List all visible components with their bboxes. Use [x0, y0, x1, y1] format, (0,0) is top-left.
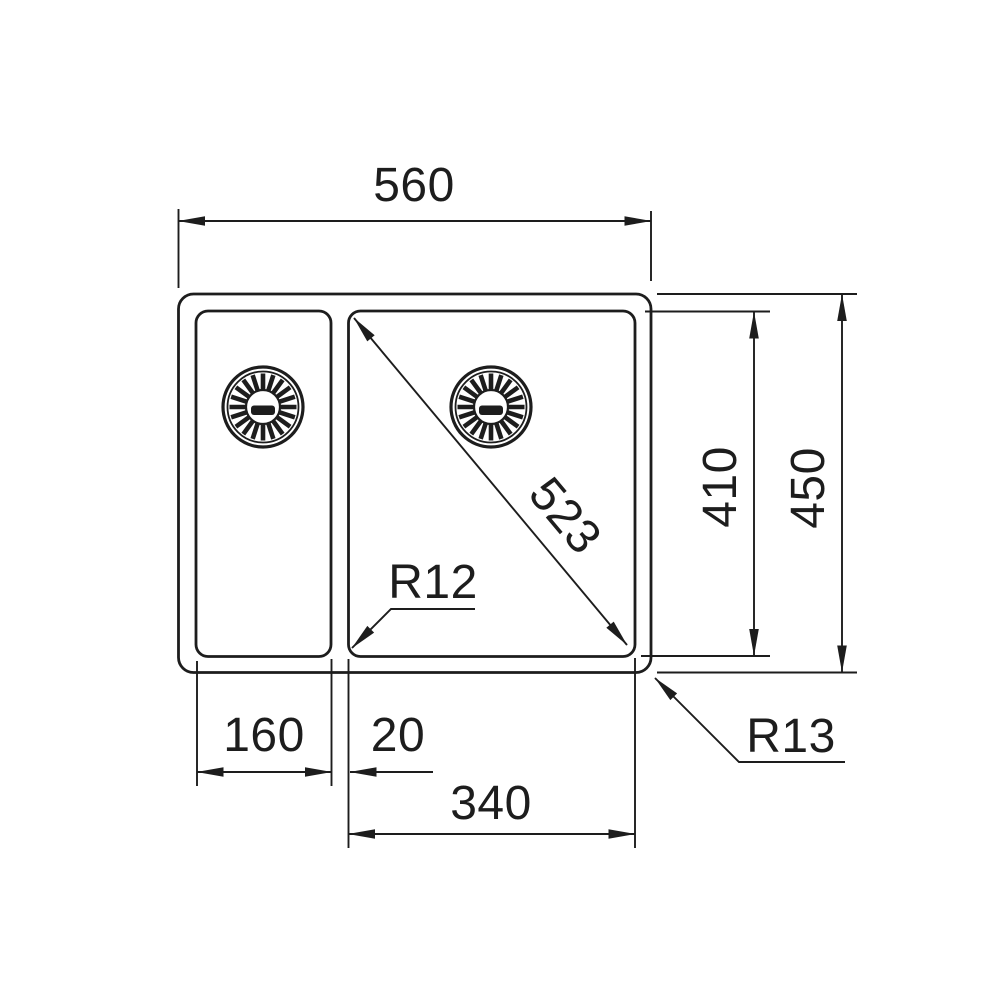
dim-bowl-diagonal-label: 523 [518, 468, 611, 565]
sink-technical-drawing: 560 523 R12 410 450 160 20 [0, 0, 1000, 1000]
dim-overall-width: 560 [179, 159, 652, 221]
large-bowl-drain [451, 367, 531, 447]
small-bowl-outline [196, 311, 331, 657]
dim-small-bowl-width-label: 160 [223, 709, 305, 762]
dim-overall-depth-label: 450 [782, 447, 835, 529]
dim-outer-radius: R13 [655, 678, 845, 763]
dim-inner-radius: R12 [352, 556, 478, 648]
dim-small-bowl-width: 160 [197, 709, 332, 772]
dim-divider-width: 20 [350, 709, 433, 772]
dim-inner-radius-leader [352, 609, 475, 648]
dim-large-bowl-width-label: 340 [450, 777, 532, 830]
dim-overall-depth: 450 [782, 295, 842, 673]
sink-dimension-drawing-page: 560 523 R12 410 450 160 20 [0, 0, 1000, 1000]
small-bowl-drain [223, 367, 303, 447]
dim-outer-radius-label: R13 [746, 710, 836, 763]
dim-overall-width-label: 560 [373, 159, 455, 212]
sink-outer-outline [179, 294, 652, 673]
dim-divider-width-label: 20 [371, 709, 425, 762]
dim-inner-depth: 410 [694, 312, 754, 656]
dim-large-bowl-width: 340 [349, 777, 636, 834]
dim-inner-radius-label: R12 [388, 556, 478, 609]
dim-inner-depth-label: 410 [694, 446, 747, 528]
